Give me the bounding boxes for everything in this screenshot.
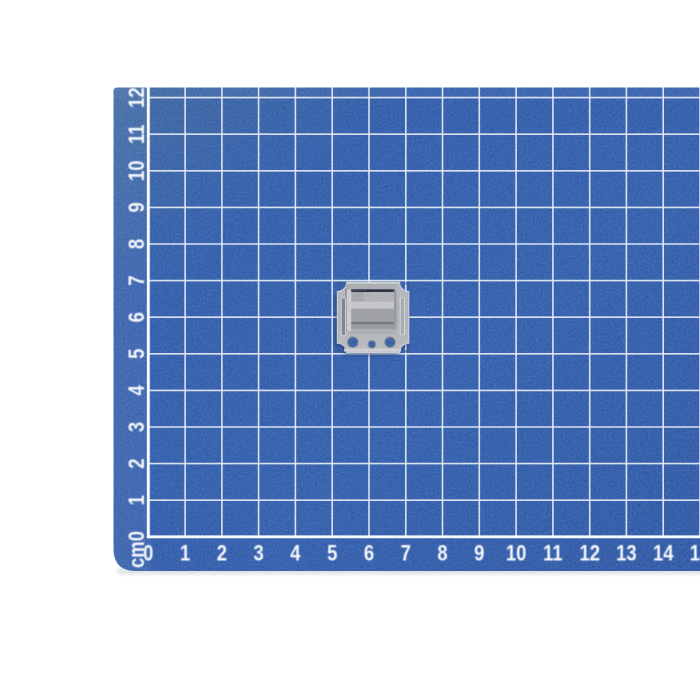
svg-text:11: 11 [124, 124, 149, 144]
svg-text:4: 4 [290, 541, 301, 566]
svg-text:11: 11 [543, 541, 563, 566]
svg-text:6: 6 [124, 312, 149, 322]
svg-text:13: 13 [616, 541, 637, 566]
svg-text:3: 3 [124, 422, 149, 432]
svg-text:15: 15 [690, 541, 700, 566]
svg-text:2: 2 [124, 458, 149, 468]
svg-text:1: 1 [124, 495, 149, 505]
svg-text:4: 4 [124, 385, 149, 396]
svg-text:5: 5 [124, 349, 149, 359]
svg-text:14: 14 [653, 541, 674, 566]
svg-text:12: 12 [579, 541, 600, 566]
svg-text:10: 10 [506, 541, 527, 566]
svg-text:2: 2 [217, 541, 227, 566]
svg-text:7: 7 [124, 275, 149, 285]
svg-text:7: 7 [401, 541, 411, 566]
svg-text:9: 9 [124, 202, 149, 212]
svg-text:3: 3 [253, 541, 263, 566]
svg-text:8: 8 [437, 541, 447, 566]
svg-text:10: 10 [124, 161, 149, 182]
svg-text:5: 5 [327, 541, 337, 566]
svg-text:8: 8 [124, 239, 149, 249]
svg-text:12: 12 [124, 87, 149, 108]
svg-text:6: 6 [364, 541, 374, 566]
svg-text:1: 1 [180, 541, 190, 566]
svg-text:cm0: cm0 [124, 531, 149, 568]
svg-text:9: 9 [474, 541, 484, 566]
